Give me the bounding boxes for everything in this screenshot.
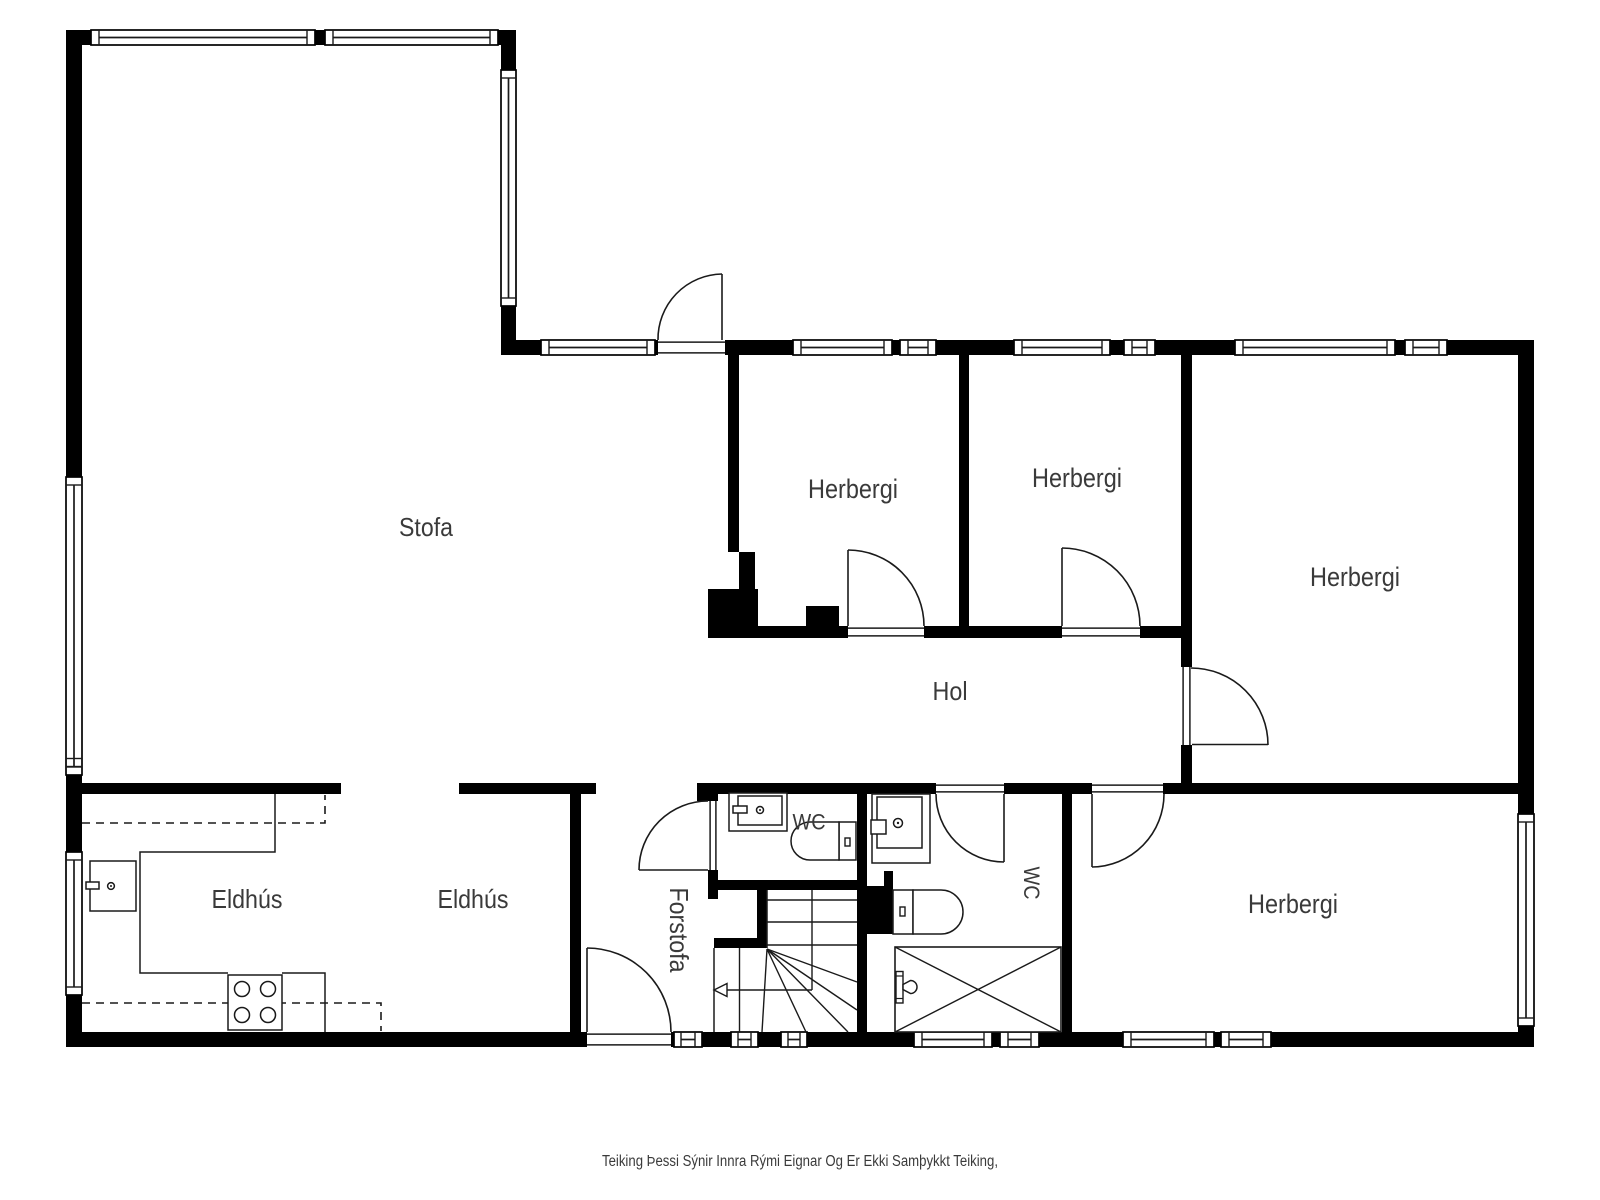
svg-text:WC: WC <box>1019 867 1044 900</box>
svg-text:WC: WC <box>793 810 826 835</box>
svg-text:Herbergi: Herbergi <box>1032 463 1122 493</box>
svg-text:Eldhús: Eldhús <box>438 884 509 914</box>
svg-text:Eldhús: Eldhús <box>212 884 283 914</box>
svg-text:Forstofa: Forstofa <box>664 888 694 973</box>
svg-text:Herbergi: Herbergi <box>808 474 898 504</box>
svg-text:Herbergi: Herbergi <box>1248 889 1338 919</box>
svg-text:Hol: Hol <box>933 676 968 706</box>
svg-text:Herbergi: Herbergi <box>1310 562 1400 592</box>
svg-text:Teiking Þessi Sýnir Innra Rými: Teiking Þessi Sýnir Innra Rými Eignar Og… <box>602 1153 998 1170</box>
svg-text:Stofa: Stofa <box>399 512 453 542</box>
